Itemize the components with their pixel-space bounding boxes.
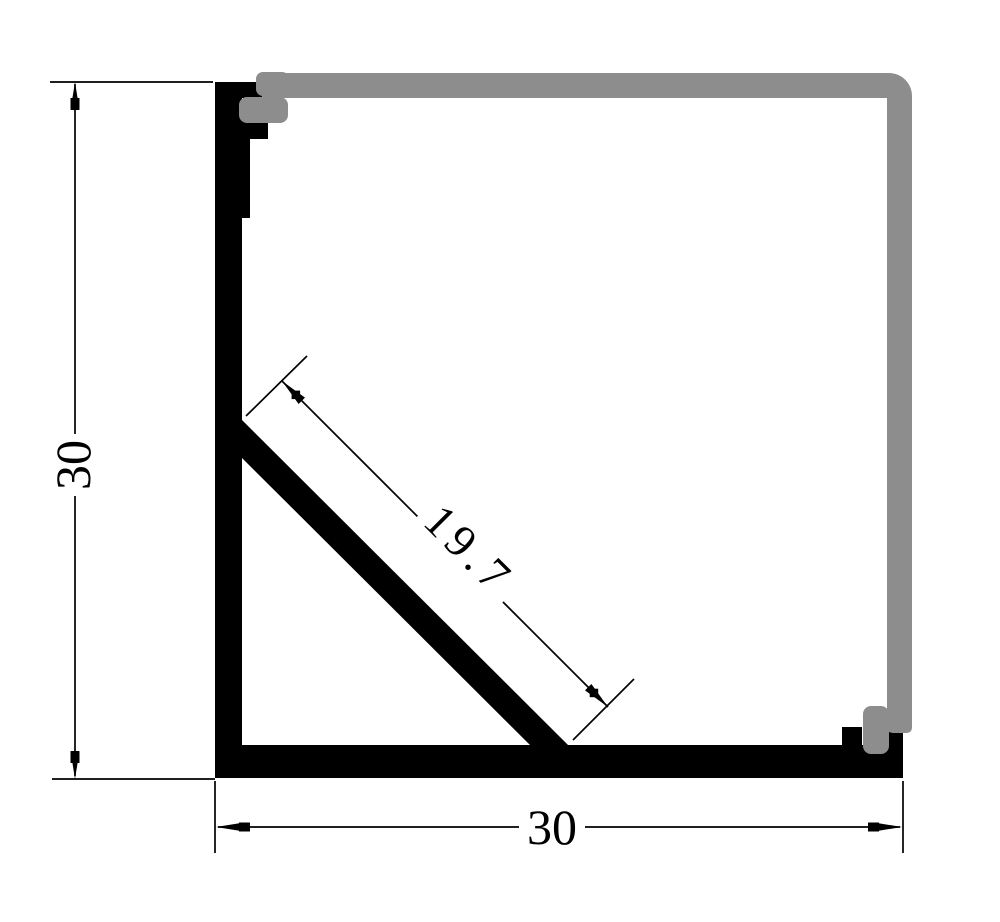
height-arrow-up-blob — [71, 98, 80, 109]
width-arrow-left-blob — [239, 823, 250, 832]
profile-drawing-svg — [0, 0, 1000, 922]
bottom-clip-left-lip — [842, 727, 862, 745]
dimension-arrows — [71, 82, 903, 832]
profile-extrusion — [215, 82, 903, 778]
diagonal-extension-line-upper — [246, 356, 307, 416]
diagonal-arrow-upper-blob — [292, 391, 301, 400]
width-dimension-label: 30 — [519, 802, 585, 852]
technical-drawing: 30 30 19.7 — [0, 0, 1000, 922]
diagonal-extension-line-lower — [573, 679, 634, 740]
height-dimension-label: 30 — [48, 434, 98, 496]
bottom-wall — [215, 745, 903, 778]
top-hook-lip — [242, 121, 268, 139]
cover-foot — [863, 706, 889, 754]
width-arrow-right-blob — [868, 823, 879, 832]
cover-tongue — [239, 97, 288, 123]
diagonal-arrow-lower-blob — [590, 689, 599, 698]
dimension-lines — [50, 82, 903, 853]
cover-end-tab — [256, 72, 289, 96]
cover-diffuser — [239, 72, 912, 754]
height-arrow-down-blob — [71, 752, 80, 763]
left-wall — [215, 82, 242, 778]
cover-band — [262, 73, 912, 733]
top-wall-step — [242, 138, 250, 218]
